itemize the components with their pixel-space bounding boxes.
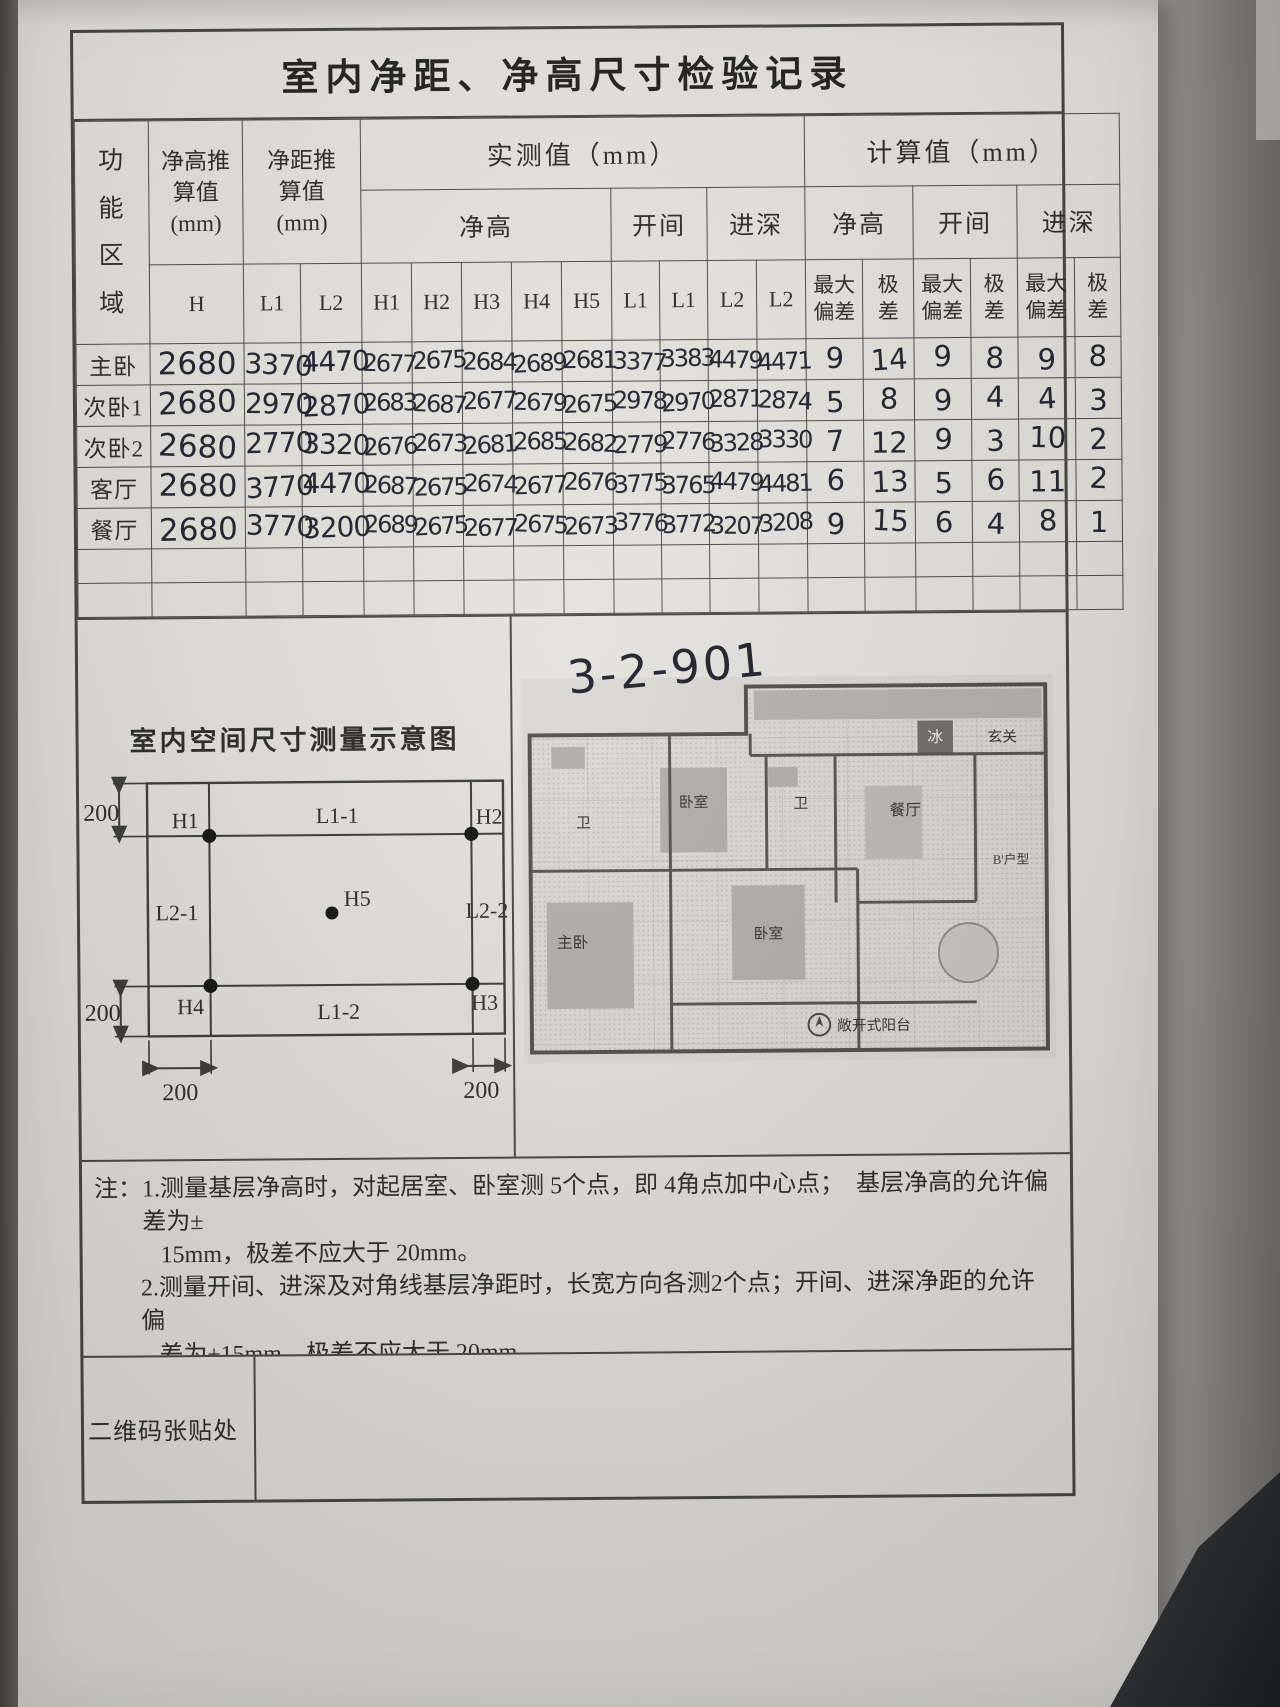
header-distance-estimate: 净距推 算值 (mm) (242, 119, 361, 264)
notes-prefix: 注： (94, 1173, 143, 1273)
empty-cell (1020, 542, 1077, 576)
col-label-range-bay: 极 差 (970, 258, 1018, 337)
col-label-range-height: 极 差 (862, 259, 914, 338)
header-function-area: 功 能 区 域 (74, 121, 150, 345)
empty-cell (464, 580, 514, 614)
col-label-maxdev-height: 最大 偏差 (805, 259, 863, 338)
measurement-cell: 2776 (661, 421, 709, 462)
measurement-cell: 6 (807, 461, 864, 502)
subheader-computed-bay: 开间 (913, 185, 1018, 259)
empty-cell (152, 548, 246, 583)
col-label-maxdev-depth: 最大 偏差 (1017, 258, 1075, 337)
measurement-cell: 2673 (413, 423, 463, 464)
empty-cell (614, 545, 662, 579)
label-h3: H3 (471, 990, 498, 1015)
desk-highlight (1256, 0, 1280, 140)
measurement-cell: 4 (1018, 378, 1075, 419)
dim-bottom-left: 200 (85, 1001, 121, 1027)
measurement-cell: 2770 (245, 425, 302, 466)
label-h1: H1 (172, 808, 199, 833)
measurement-cell: 3772 (661, 503, 709, 544)
subheader-computed-depth: 进深 (1017, 184, 1121, 258)
note-item-2: 2.测量开间、进深及对角线基层净距时，长宽方向各测2个点；开间、进深净距的允许偏… (141, 1269, 1035, 1356)
empty-cell (514, 546, 564, 580)
point-h2-dot (464, 827, 478, 841)
measurement-cell: 9 (807, 502, 864, 543)
measurement-cell: 4470 (301, 342, 362, 383)
diagram-cell: 室内空间尺寸测量示意图 (78, 617, 516, 1160)
measurement-cell: 14 (863, 338, 914, 379)
empty-cell (303, 581, 364, 615)
floorplan-image: 冰 玄关 卫 卧室 卫 餐厅 B'户型 主卧 卧室 敞开式阳台 (520, 674, 1057, 1062)
empty-cell (464, 546, 514, 580)
label-l1-1: L1-1 (316, 803, 359, 828)
measurement-cell: 2970 (660, 380, 708, 421)
area-label-cell: 客厅 (77, 467, 151, 509)
empty-cell (916, 576, 973, 610)
empty-cell (808, 543, 865, 577)
blank-cell (255, 1350, 1072, 1499)
point-h5-dot (325, 906, 338, 919)
col-label-H3: H3 (461, 262, 512, 341)
measurement-cell: 8 (1019, 501, 1076, 542)
measurement-cell: 8 (971, 337, 1018, 378)
dim-top-left: 200 (83, 801, 119, 827)
note-item-1: 1.测量基层净高时，对起居室、卧室测 5个点，即 4角点加中心点； 基层净高的允… (142, 1166, 1053, 1272)
empty-cell (973, 576, 1020, 610)
measurement-cell: 2676 (363, 424, 413, 465)
col-label-L2b: L2 (756, 260, 806, 339)
empty-cell (1077, 541, 1123, 575)
measurement-cell: 2677 (463, 505, 513, 546)
col-label-L1: L1 (243, 264, 301, 343)
measurement-cell: 4 (972, 501, 1019, 542)
measurement-cell: 2 (1076, 418, 1122, 459)
measurement-cell: 2871 (708, 380, 757, 421)
area-label-cell: 次卧1 (76, 385, 150, 427)
desk-right-background (1150, 0, 1280, 1707)
paper-sheet: 室内净距、净高尺寸检验记录 功 能 区 域 净高推 算值 (mm) 净距推 算值… (18, 0, 1158, 1707)
point-h4-dot (203, 979, 217, 993)
col-label-L2a: L2 (707, 260, 757, 339)
measurement-cell: 9 (915, 419, 972, 460)
empty-cell (1077, 575, 1123, 609)
empty-cell (662, 544, 710, 578)
measurement-cell: 3 (972, 419, 1019, 460)
measurement-cell: 3776 (613, 504, 661, 545)
measurement-cell: 3370 (244, 343, 301, 384)
measurement-cell: 2680 (151, 466, 245, 508)
area-label-cell: 次卧2 (77, 426, 151, 468)
label-h4: H4 (177, 994, 204, 1019)
room-label-fridge: 冰 (927, 728, 943, 746)
empty-cell (916, 542, 973, 576)
middle-section: 室内空间尺寸测量示意图 (78, 610, 1070, 1160)
desk-left-edge (0, 0, 20, 1707)
subheader-computed-height: 净高 (805, 186, 914, 260)
measurement-cell: 1 (1076, 500, 1122, 541)
label-l2-2: L2-2 (465, 898, 508, 923)
measurement-cell: 2779 (613, 422, 661, 463)
measure-table-body: 主卧26803370447026772675268426892681337733… (76, 336, 1123, 617)
measurement-cell: 3320 (302, 424, 363, 465)
measurement-cell: 8 (863, 379, 914, 420)
empty-cell (865, 543, 916, 577)
empty-cell (564, 545, 614, 579)
measurement-cell: 2687 (363, 465, 413, 506)
table-section: 功 能 区 域 净高推 算值 (mm) 净距推 算值 (mm) 实测值（mm） … (74, 111, 1066, 618)
measurement-cell: 2680 (151, 425, 245, 467)
measurement-cell: 2677 (462, 382, 512, 423)
title-section: 室内净距、净高尺寸检验记录 (73, 25, 1062, 119)
measurement-cell: 3377 (612, 340, 660, 381)
measurement-cell: 15 (864, 502, 915, 543)
point-h3-dot (465, 977, 479, 991)
measurement-cell: 2675 (562, 381, 612, 422)
room-label-balcony: 敞开式阳台 (837, 1017, 911, 1035)
empty-cell (710, 544, 759, 578)
empty-cell (414, 580, 464, 614)
room-label-bed2: 卧室 (754, 925, 784, 942)
diagram-title: 室内空间尺寸测量示意图 (78, 717, 510, 759)
floorplan-cell: 3-2-901 (512, 612, 1070, 1156)
measurement-cell: 4481 (758, 462, 807, 503)
measurement-cell: 2675 (413, 464, 463, 505)
dim-bottom-h-right: 200 (463, 1078, 499, 1104)
measurement-cell: 2689 (512, 341, 562, 382)
measurement-cell: 10 (1019, 419, 1076, 460)
area-label-cell: 主卧 (76, 344, 150, 386)
room-label-foyer: 玄关 (987, 729, 1017, 746)
empty-cell (759, 544, 808, 578)
measurement-cell: 2684 (462, 341, 512, 382)
empty-cell (614, 579, 662, 613)
measurement-cell: 9 (806, 338, 863, 379)
label-l1-2: L1-2 (317, 999, 360, 1024)
measurement-cell: 3770 (245, 507, 302, 548)
measurement-cell: 11 (1019, 460, 1076, 501)
col-label-H5: H5 (561, 261, 612, 340)
page-title: 室内净距、净高尺寸检验记录 (281, 43, 853, 101)
measurement-cell: 6 (915, 501, 972, 542)
empty-cell (808, 577, 865, 611)
room-label-master: 主卧 (557, 934, 589, 952)
measurement-cell: 3200 (302, 506, 363, 547)
measurement-cell: 4479 (708, 339, 757, 380)
measurement-cell: 2677 (362, 342, 412, 383)
label-h5: H5 (344, 886, 371, 911)
empty-cell (364, 581, 414, 615)
empty-cell (303, 547, 364, 581)
col-label-H2: H2 (411, 262, 462, 341)
measurement-cell: 3765 (661, 462, 709, 503)
empty-cell (364, 547, 414, 581)
measurement-cell: 3207 (709, 503, 758, 544)
subheader-measured-height: 净高 (361, 188, 612, 263)
label-l2-1: L2-1 (155, 900, 198, 925)
measurement-cell: 3770 (245, 466, 302, 507)
measurement-cell: 2681 (463, 423, 513, 464)
measurement-cell: 3775 (613, 463, 661, 504)
empty-cell (564, 579, 614, 613)
measurement-cell: 8 (1075, 336, 1121, 377)
qr-paste-cell: 二维码张贴处 (83, 1357, 256, 1501)
measurement-cell: 2675 (513, 505, 563, 546)
measurement-cell: 9 (1018, 337, 1075, 378)
measurement-cell: 12 (864, 420, 915, 461)
area-label-cell: 餐厅 (77, 508, 151, 550)
measurement-table: 功 能 区 域 净高推 算值 (mm) 净距推 算值 (mm) 实测值（mm） … (74, 113, 1124, 618)
measurement-cell: 2978 (612, 381, 660, 422)
header-height-estimate: 净高推 算值 (mm) (148, 120, 243, 265)
measurement-cell: 3330 (758, 421, 807, 462)
empty-cell (78, 549, 152, 584)
col-label-H: H (149, 264, 244, 344)
measurement-cell: 3 (1075, 377, 1121, 418)
dim-bottom-h-left: 200 (162, 1080, 198, 1106)
room-label-dining: 餐厅 (890, 801, 922, 819)
notes-section: 注： 1.测量基层净高时，对起居室、卧室测 5个点，即 4角点加中心点； 基层净… (82, 1152, 1072, 1356)
measurement-cell: 9 (914, 337, 971, 378)
measurement-cell: 2679 (512, 382, 562, 423)
measurement-cell: 9 (914, 378, 971, 419)
measurement-cell: 2 (1076, 459, 1122, 500)
measurement-cell: 2870 (301, 383, 362, 424)
col-label-range-depth: 极 差 (1074, 257, 1121, 336)
measurement-cell: 2689 (363, 506, 413, 547)
empty-cell (759, 578, 808, 612)
note-line-1: 注： 1.测量基层净高时，对起居室、卧室测 5个点，即 4角点加中心点； 基层净… (94, 1166, 1053, 1273)
point-h1-dot (202, 829, 216, 843)
room-label-unit-type: B'户型 (993, 852, 1030, 867)
measurement-cell: 2675 (413, 505, 463, 546)
measurement-cell: 2874 (757, 380, 806, 421)
label-h2: H2 (476, 804, 503, 829)
empty-cell (246, 548, 303, 582)
measurement-cell: 2675 (412, 341, 462, 382)
col-label-maxdev-bay: 最大 偏差 (913, 258, 971, 337)
subheader-measured-bay: 开间 (611, 188, 708, 262)
measurement-cell: 2680 (150, 384, 244, 426)
subheader-measured-depth: 进深 (707, 187, 806, 261)
empty-cell (78, 583, 152, 618)
measurement-cell: 4 (971, 378, 1018, 419)
empty-cell (973, 542, 1020, 576)
qr-paste-label: 二维码张贴处 (88, 1411, 238, 1447)
col-label-L1b: L1 (659, 261, 708, 340)
empty-cell (710, 578, 759, 612)
measurement-cell: 2681 (562, 340, 612, 381)
measurement-cell: 13 (864, 461, 915, 502)
col-label-H4: H4 (511, 262, 562, 341)
room-label-bath2: 卫 (793, 796, 808, 812)
measurement-cell: 2673 (563, 504, 613, 545)
measurement-cell: 2674 (463, 464, 513, 505)
measurement-cell: 2676 (563, 463, 613, 504)
measurement-cell: 6 (972, 460, 1019, 501)
measurement-cell: 2677 (513, 464, 563, 505)
measurement-cell: 4479 (709, 462, 758, 503)
measurement-cell: 2680 (150, 343, 244, 385)
measurement-cell: 7 (807, 420, 864, 461)
measurement-cell: 3383 (660, 339, 708, 380)
measurement-diagram: H1 H2 H3 H4 H5 L1-1 L1-2 L2-1 L2-2 200 (79, 766, 514, 1139)
floorplan-image-wrap: 冰 玄关 卫 卧室 卫 餐厅 B'户型 主卧 卧室 敞开式阳台 (520, 674, 1057, 1062)
room-label-bath1: 卫 (576, 816, 591, 832)
note-line-2: 2.测量开间、进深及对角线基层净距时，长宽方向各测2个点；开间、进深净距的允许偏… (141, 1266, 1054, 1356)
bottom-section: 二维码张贴处 (83, 1348, 1072, 1501)
empty-cell (865, 577, 916, 611)
empty-cell (514, 580, 564, 614)
measurement-cell: 2685 (513, 423, 563, 464)
empty-cell (152, 582, 246, 617)
empty-cell (246, 582, 303, 616)
measurement-cell: 3328 (709, 421, 758, 462)
measurement-cell: 2680 (151, 507, 245, 549)
col-label-L2: L2 (300, 263, 362, 342)
measurement-cell: 2682 (563, 422, 613, 463)
measurement-cell: 2970 (244, 384, 301, 425)
col-label-L1a: L1 (611, 261, 660, 340)
col-label-H1: H1 (361, 263, 412, 342)
measurement-cell: 4471 (757, 339, 806, 380)
room-label-bed1: 卧室 (679, 794, 709, 811)
measurement-cell: 2687 (412, 382, 462, 423)
header-computed-group: 计算值（mm） (804, 113, 1120, 186)
measurement-cell: 5 (915, 460, 972, 501)
form-frame: 室内净距、净高尺寸检验记录 功 能 区 域 净高推 算值 (mm) 净距推 算值… (70, 22, 1076, 1504)
measurement-cell: 5 (806, 379, 863, 420)
empty-cell (414, 546, 464, 580)
empty-cell (1020, 576, 1077, 610)
header-measured-group: 实测值（mm） (360, 116, 805, 190)
empty-cell (662, 578, 710, 612)
measurement-cell: 3208 (758, 503, 807, 544)
